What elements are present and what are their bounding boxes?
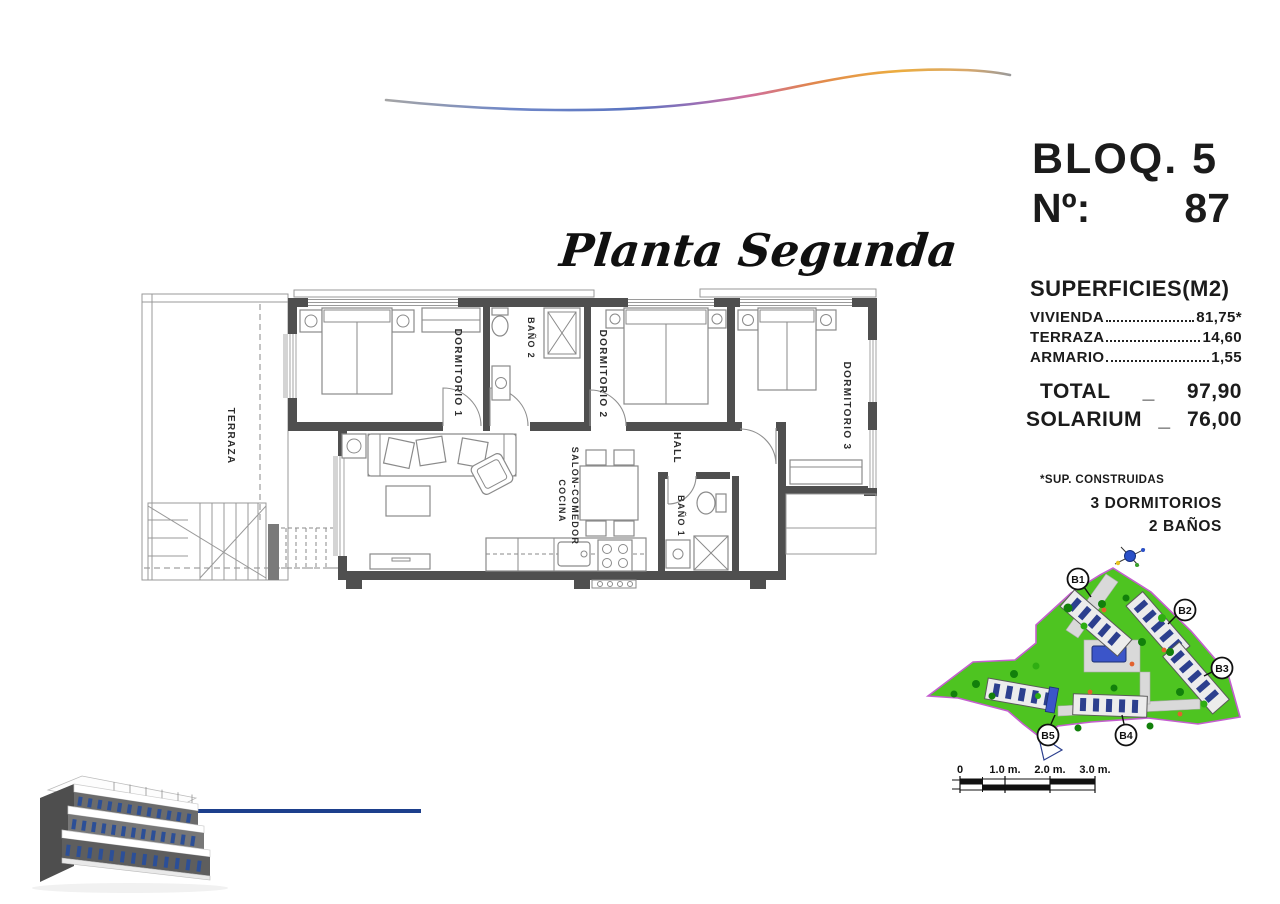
sink	[666, 540, 690, 568]
kitchen-counter	[486, 538, 646, 588]
nightstand	[708, 310, 726, 328]
surface-value: 14,60	[1202, 329, 1242, 346]
block-label: BLOQ. 5	[1032, 136, 1247, 182]
room-label-dormitorio3: DORMITORIO 3	[841, 362, 852, 451]
unit-header: BLOQ. 5 Nº: 87	[1032, 136, 1247, 232]
marker-b4-label: B4	[1119, 730, 1133, 742]
kitchen-sink	[558, 542, 590, 566]
nightstand	[738, 310, 758, 330]
totals-panel: TOTAL _ 97,90 SOLARIUM _ 76,00	[1026, 378, 1242, 433]
solarium-row: SOLARIUM _ 76,00	[1026, 406, 1242, 434]
surface-row-terraza: TERRAZA 14,60	[1030, 329, 1242, 346]
render-shadow	[32, 883, 228, 893]
accent-line	[176, 809, 421, 813]
door-dormitorio3	[740, 428, 776, 464]
footnote: *SUP. CONSTRUIDAS	[1040, 474, 1164, 486]
marker-b5-label: B5	[1041, 730, 1055, 742]
toilet	[492, 308, 508, 315]
swoosh-stroke	[386, 70, 1010, 111]
surfaces-panel: SUPERFICIES(M2) VIVIENDA 81,75* TERRAZA …	[1030, 276, 1242, 369]
leader-dots	[1106, 320, 1194, 322]
room-label-hall: HALL	[671, 432, 682, 464]
leader-dots	[1106, 340, 1200, 342]
side-table	[342, 434, 366, 458]
unit-number-row: Nº: 87	[1032, 185, 1230, 232]
adjacent-outline	[786, 494, 876, 554]
coffee-table	[386, 486, 430, 516]
room-label-dormitorio2: DORMITORIO 2	[597, 330, 608, 419]
stove	[598, 540, 632, 571]
room-label-dormitorio1: DORMITORIO 1	[452, 329, 463, 418]
scale-bar-graphic	[952, 776, 1095, 793]
sink	[492, 366, 510, 400]
building-b4	[1073, 694, 1148, 718]
nightstand	[606, 310, 624, 328]
total-label: TOTAL	[1040, 378, 1111, 406]
pillow	[384, 438, 415, 469]
surface-value: 81,75*	[1196, 309, 1242, 326]
marker-b3-label: B3	[1215, 663, 1229, 675]
nightstand	[392, 310, 414, 332]
surface-row-vivienda: VIVIENDA 81,75*	[1030, 309, 1242, 326]
render-building	[40, 776, 210, 882]
dormitorio2-furniture	[606, 308, 726, 404]
total-separator: _	[1143, 378, 1155, 406]
parapet-lines	[294, 289, 876, 297]
feature-bathrooms: 2 BAÑOS	[1016, 515, 1222, 538]
nightstand	[816, 310, 836, 330]
solarium-separator: _	[1158, 406, 1170, 434]
stair-post	[268, 524, 279, 580]
plan-title: Planta Segunda	[557, 224, 960, 277]
surface-label: VIVIENDA	[1030, 309, 1104, 326]
number-value: 87	[1184, 185, 1230, 232]
room-label-bano2: BAÑO 2	[526, 317, 536, 359]
nightstand	[300, 310, 322, 332]
siteplan-map: B1 B2 B3 B4 B5	[918, 546, 1270, 764]
surface-value: 1,55	[1211, 349, 1242, 366]
bench	[790, 460, 862, 484]
chair	[614, 521, 634, 536]
solarium-label: SOLARIUM	[1026, 406, 1142, 434]
scale-bar: 0 1.0 m. 2.0 m. 3.0 m.	[948, 760, 1116, 806]
scale-tick-0: 0	[957, 764, 963, 776]
dining-table	[580, 466, 638, 520]
surface-row-armario: ARMARIO 1,55	[1030, 349, 1242, 366]
marker-b1-label: B1	[1071, 574, 1085, 586]
pillow	[416, 436, 446, 466]
room-label-cocina: COCINA	[557, 479, 567, 522]
surface-label: ARMARIO	[1030, 349, 1104, 366]
surface-label: TERRAZA	[1030, 329, 1104, 346]
scale-tick-3: 3.0 m.	[1079, 764, 1110, 776]
terraza-area	[142, 294, 338, 580]
gradient-swoosh	[378, 56, 1018, 114]
brochure-page: { "header": { "block_label": "BLOQ. 5", …	[0, 0, 1280, 904]
marker-b2-label: B2	[1178, 605, 1192, 617]
solarium-value: 76,00	[1187, 406, 1242, 434]
surfaces-title: SUPERFICIES(M2)	[1030, 276, 1242, 302]
total-value: 97,90	[1187, 378, 1242, 406]
feature-bedrooms: 3 DORMITORIOS	[1016, 492, 1222, 515]
room-label-salon-comedor: SALON-COMEDOR	[570, 447, 580, 545]
chair	[614, 450, 634, 465]
bano1-fixtures	[666, 492, 728, 570]
floorplan-drawing: TERRAZA DORMITORIO 1 BAÑO 2 DORMITORIO 2…	[140, 288, 884, 594]
features-block: 3 DORMITORIOS 2 BAÑOS	[1016, 492, 1222, 539]
scale-tick-2: 2.0 m.	[1034, 764, 1065, 776]
room-label-terraza: TERRAZA	[225, 408, 236, 465]
chair	[586, 450, 606, 465]
chair	[586, 521, 606, 536]
total-row: TOTAL _ 97,90	[1026, 378, 1242, 406]
room-label-bano1: BAÑO 1	[676, 495, 686, 537]
leader-dots	[1106, 360, 1209, 362]
compass-icon	[1115, 547, 1145, 567]
building-render	[18, 764, 436, 898]
toilet	[716, 494, 726, 512]
number-label: Nº:	[1032, 185, 1090, 232]
scale-tick-1: 1.0 m.	[989, 764, 1020, 776]
